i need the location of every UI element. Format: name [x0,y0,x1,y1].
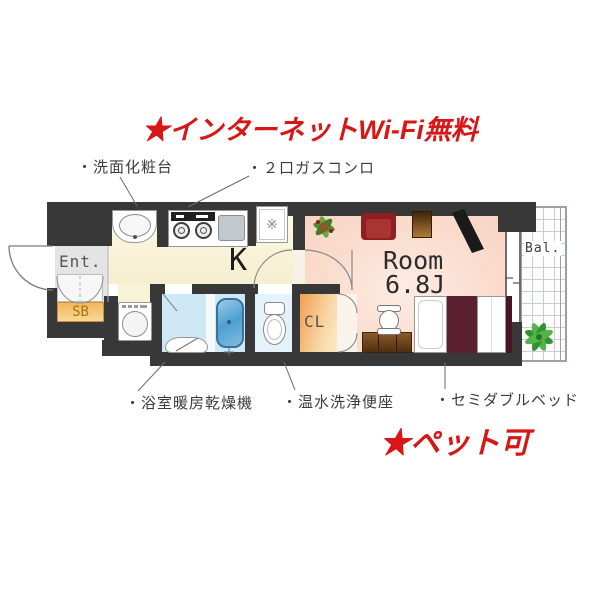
wall-below-laundry [102,340,154,356]
toilet-door-gap [258,284,292,294]
bathroom-sink [165,337,208,353]
stove-burner-right-inner [200,227,207,234]
callout-gas-stove: ・２口ガスコンロ [247,157,375,178]
wall-bottom [150,352,522,366]
bathroom-divider-strip [206,294,215,352]
chair-front [377,328,401,335]
floorplan-canvas: ★インターネットWi-Fi無料 ★ペット可 ・洗面化粧台 ・２口ガスコンロ ・浴… [0,0,600,600]
washing-machine-knob2 [128,305,132,308]
shelf-box [412,211,432,238]
bed-headboard [506,296,512,353]
sofa-seat [366,219,391,238]
stove-burner-left-inner [178,227,185,234]
washing-machine-knob3 [134,305,138,308]
wall-kitchen-room [293,202,305,250]
stove-control-mark [176,215,184,218]
doorway-floor [293,248,305,288]
washbasin-bowl [119,214,151,237]
wall-kitchen-room-stub [293,287,305,294]
balcony-railing-line [560,206,561,362]
wall-basin-stove-stub [157,202,168,247]
callout-bath-dryer: ・浴室暖房乾燥機 [125,392,253,413]
desk-line2 [396,334,397,351]
bed-pillow [418,300,443,349]
bathtub-drain [227,320,231,324]
balcony-label: Bal. [524,241,561,256]
entrance-closet [57,274,103,302]
wall-below-shoebox [47,320,107,338]
wall-below-window [512,322,522,354]
desk [362,332,412,353]
shoebox: SB [57,302,104,322]
callout-washbasin: ・洗面化粧台 [77,156,173,177]
closet-door-strip [337,294,357,352]
washing-machine-drum [122,311,148,337]
bed-cover [447,296,477,353]
callout-bed: ・セミダブルベッド [435,389,579,410]
washing-machine-panel [140,305,147,308]
wall-top-left-block [47,202,112,246]
bed-crease [491,298,492,351]
wall-toilet-closet-divider [292,294,300,354]
entrance-door [9,246,53,290]
fridge-space: ※ [256,206,288,243]
internet-wifi-banner: ★インターネットWi-Fi無料 [120,108,500,147]
washbasin-drain [133,235,137,239]
callout-washlet: ・温水洗浄便座 [282,391,394,412]
closet-label: CL [304,312,325,331]
fridge-symbol: ※ [259,209,285,240]
desk-line1 [378,334,379,351]
washing-machine-knob1 [122,305,126,308]
wall-tub-toilet-divider [245,294,255,354]
kitchen-sink-counter [218,215,245,241]
room-size-label: 6.8J [385,270,445,299]
toilet-seat [267,319,282,340]
shoebox-label: SB [72,304,89,320]
stove-control-mark2 [196,215,208,218]
kitchen-label: K [229,243,247,278]
wall-shoebox-laundry-divider [104,296,118,342]
wall-top-right-column [498,202,536,232]
entrance-label: Ent. [59,252,102,271]
pets-allowed-banner: ★ペット可 [380,418,530,462]
bath-door-gap [165,284,192,294]
